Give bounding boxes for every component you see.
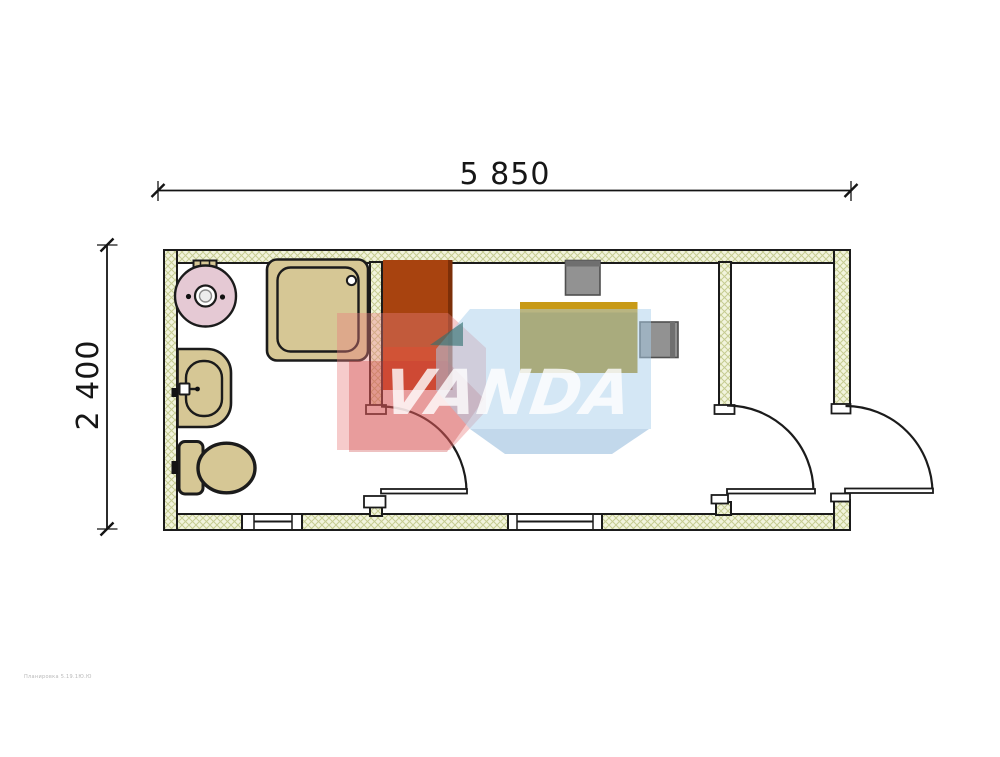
water-heater-icon <box>175 261 236 327</box>
window-office <box>508 514 602 530</box>
door-exterior <box>845 406 933 493</box>
watermark-blue-fold <box>470 429 649 454</box>
hinge-cap <box>712 495 729 504</box>
window-bathroom <box>242 514 302 530</box>
watermark-blue-shape <box>436 309 651 429</box>
wall-top <box>164 250 850 263</box>
partition-office <box>719 262 731 406</box>
watermark-shapes <box>337 309 651 454</box>
drawing-caption: Планировка 5.19.1Ю.Ю <box>24 674 92 680</box>
hinge-cap <box>364 496 386 508</box>
hinge-cap <box>831 494 850 502</box>
floor-plan-page: 5 850 2 400 VANDA Планировка 5.19.1Ю.Ю <box>0 0 1000 757</box>
toilet-icon <box>179 442 255 495</box>
floor-plan-drawing <box>0 0 1000 757</box>
wall-right-upper <box>834 250 850 413</box>
wall-right-lower <box>834 500 850 530</box>
dimension-width-label: 5 850 <box>440 157 570 192</box>
chair-top <box>566 261 601 296</box>
door-office <box>727 406 815 494</box>
dimension-height-label: 2 400 <box>71 310 103 460</box>
washbasin-icon <box>178 349 232 427</box>
